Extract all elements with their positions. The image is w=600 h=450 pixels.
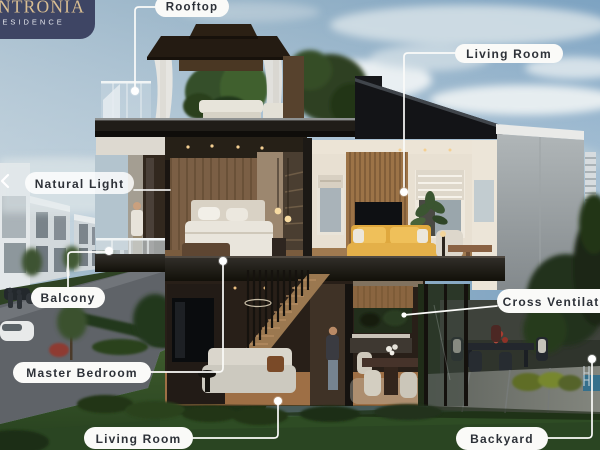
- svg-text:Living Room: Living Room: [466, 47, 552, 61]
- svg-text:Living Room: Living Room: [96, 432, 182, 446]
- svg-text:Balcony: Balcony: [40, 291, 95, 305]
- svg-text:Cross Ventilat: Cross Ventilat: [503, 295, 600, 309]
- svg-text:Natural Light: Natural Light: [35, 177, 125, 191]
- svg-text:RESIDENCE: RESIDENCE: [0, 18, 65, 27]
- svg-text:Master Bedroom: Master Bedroom: [26, 366, 138, 380]
- svg-text:ENTRONIA: ENTRONIA: [0, 0, 85, 17]
- svg-text:Rooftop: Rooftop: [166, 2, 218, 14]
- svg-text:Backyard: Backyard: [470, 432, 534, 446]
